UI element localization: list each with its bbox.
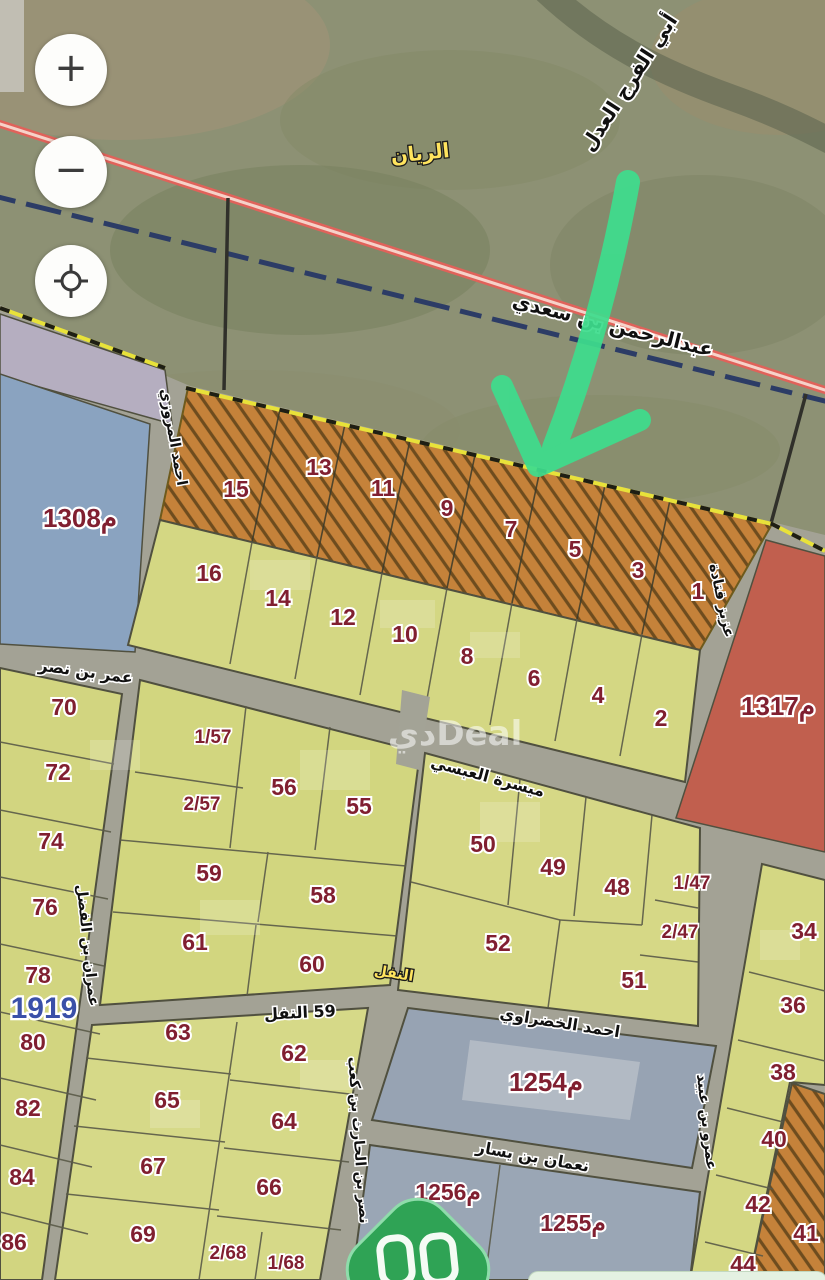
zoom-in-button[interactable]: + [35,34,107,106]
minus-icon: − [54,150,88,190]
parcel-label: 64 [271,1108,297,1134]
parcel-label: 48 [604,874,630,900]
parcel-label: 70 [51,694,77,720]
parcel-label: 55 [346,793,372,819]
block-number-label: 1919 [11,992,78,1025]
bottom-sheet[interactable] [528,1271,825,1280]
crosshair-icon [51,261,91,301]
parcel-label: 59 [196,860,222,886]
parcel-label: 34 [791,918,817,944]
parcel-label: 4 [592,682,605,708]
parcel-label: 58 [310,882,336,908]
parcel-label: 72 [45,759,71,785]
parcel-label: 1/57 [195,727,232,748]
parcel-label: 6 [528,665,541,691]
parcel-label: 49 [540,854,566,880]
parcel-label: 76 [32,894,58,920]
deal-watermark: ديDeal [388,714,523,754]
map-canvas[interactable]: أبي الفرج العدل الريان عبدالرحمن بن سعدي… [0,0,825,1280]
parcel-label: 16 [196,560,222,586]
parcel-label: 78 [25,962,51,988]
block-number-label: 1317م [741,691,815,722]
parcel-label: 41 [793,1220,819,1246]
block-number-label: 1308م [43,503,117,534]
parcel-label: 36 [780,992,806,1018]
parcel-label: 14 [265,585,291,611]
parcel-label: 80 [20,1029,46,1055]
block-63-69[interactable] [55,1008,368,1280]
parcel-label: 15 [223,476,249,502]
parcel-label: 10 [392,621,418,647]
parcel-label: 1/68 [268,1253,305,1274]
parcel-label: 2/68 [210,1243,247,1264]
parcel-label: 62 [281,1040,307,1066]
plus-icon: + [54,48,88,88]
parcel-label: 1/47 [674,873,711,894]
block-number-label: 1255م [540,1210,605,1237]
parcel-label: 3 [632,557,645,583]
parcel-label: 74 [38,828,64,854]
parcel-label: 52 [485,930,511,956]
parcel-label: 65 [154,1087,180,1113]
parcel-label: 8 [461,643,474,669]
parcel-label: 69 [130,1221,156,1247]
parcel-label: 38 [770,1059,796,1085]
parcel-label: 12 [330,604,356,630]
parcel-label: 2/47 [662,922,699,943]
parcel-label: 61 [182,929,208,955]
parcel-label: 67 [140,1153,166,1179]
street-label: 59 النفل [264,1001,337,1024]
parcel-label: 40 [761,1126,787,1152]
parcel-label: 9 [441,495,454,521]
zoom-out-button[interactable]: − [35,136,107,208]
parcel-label: 56 [271,774,297,800]
parcel-label: 2 [655,705,668,731]
parcel-label: 66 [256,1174,282,1200]
parcel-label: 7 [505,516,518,542]
parcel-label: 82 [15,1095,41,1121]
block-number-label: 1254م [509,1067,583,1098]
parcel-label: 2/57 [184,794,221,815]
parcel-label: 11 [371,475,396,501]
locate-button[interactable] [35,245,107,317]
parcel-label: 86 [1,1229,27,1255]
parcel-label: 63 [165,1019,191,1045]
parcel-label: 13 [306,454,332,480]
parcel-label: 84 [9,1164,35,1190]
parcel-label: 50 [470,831,496,857]
parcel-label: 5 [569,536,582,562]
parcel-label: 51 [621,967,647,993]
parcel-label: 1 [692,578,705,604]
parcel-label: 60 [299,951,325,977]
parcel-label: 42 [745,1191,771,1217]
